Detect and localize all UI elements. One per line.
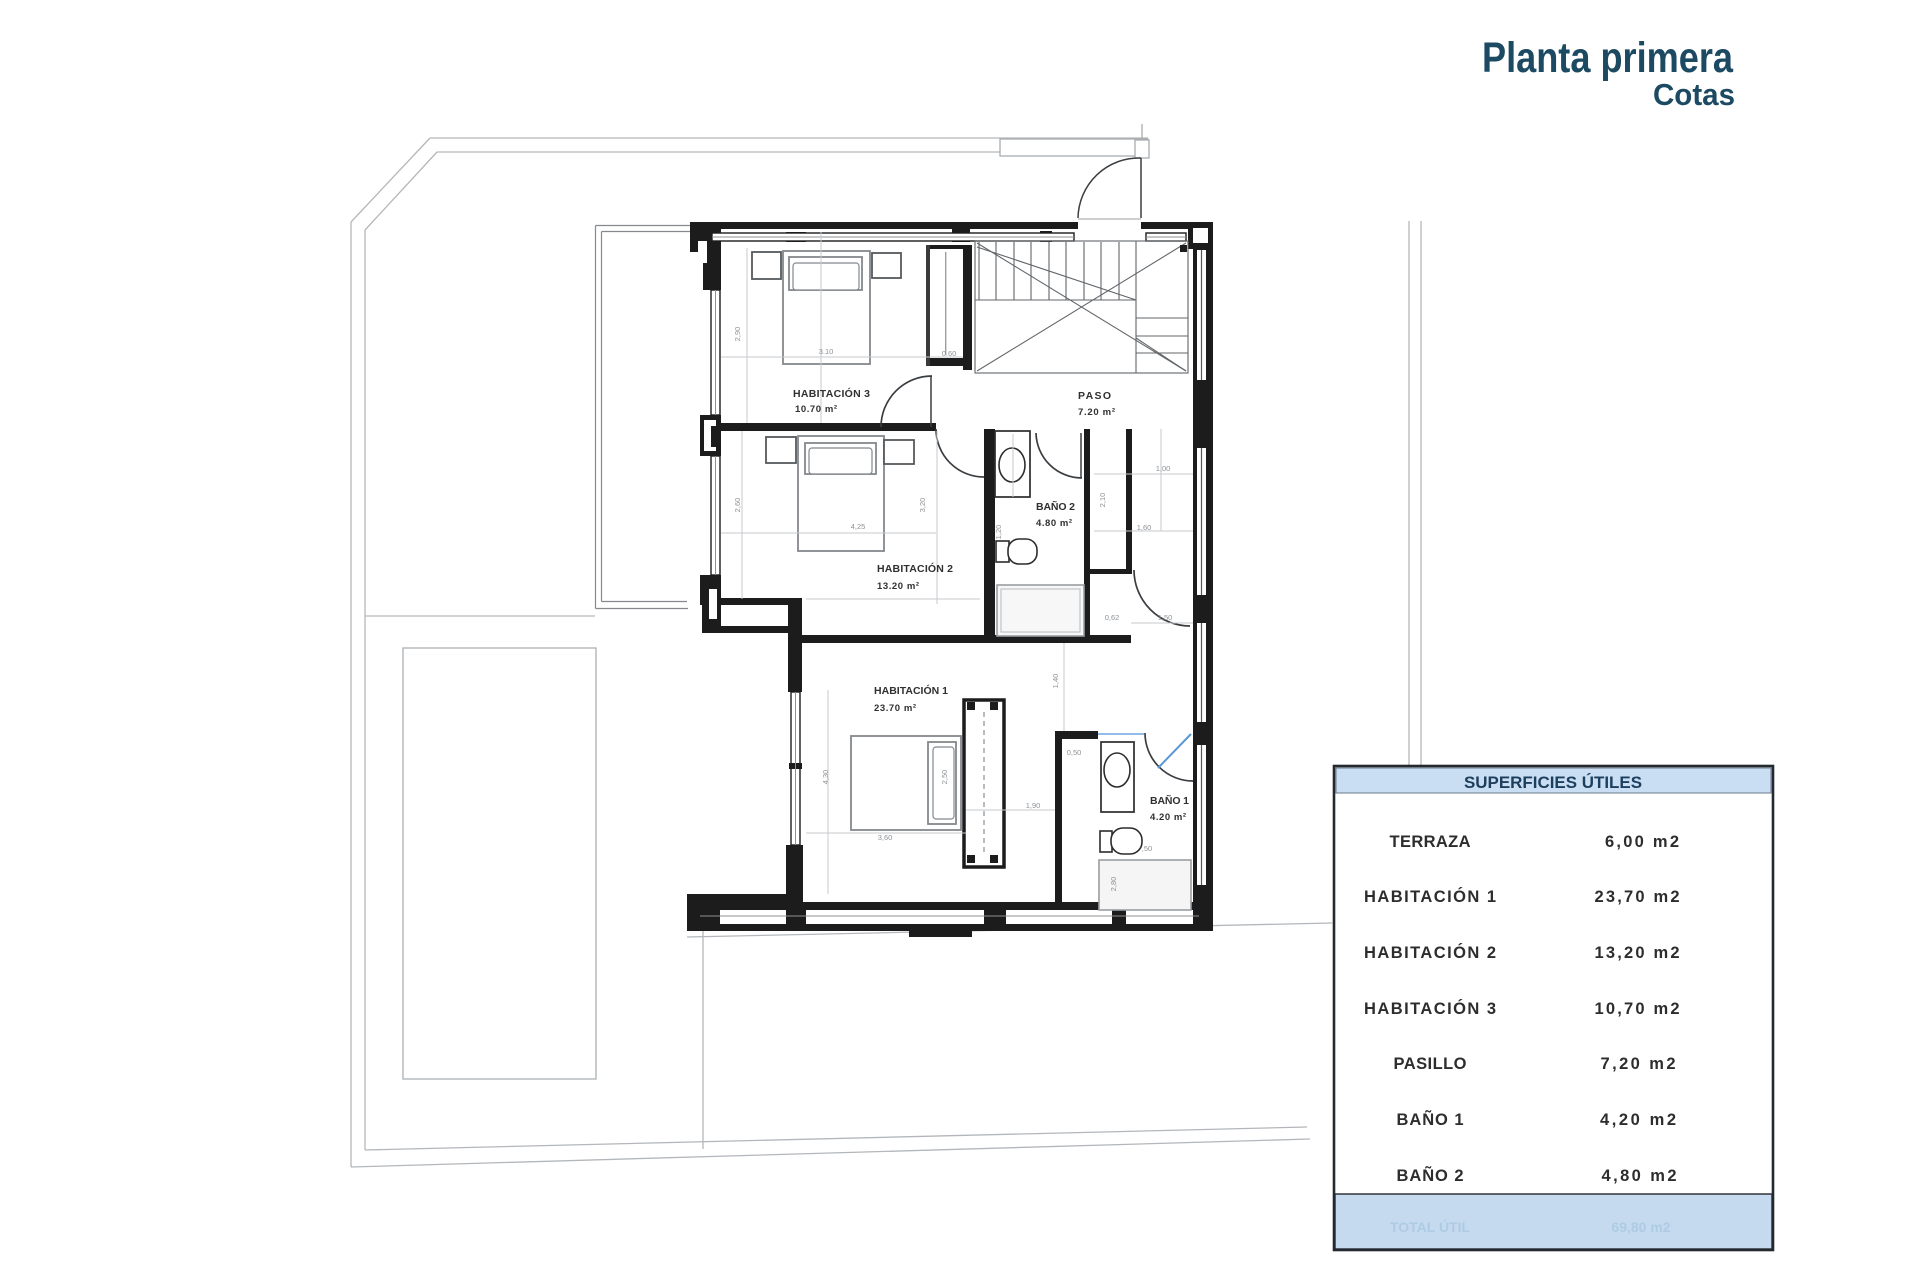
svg-text:TERRAZA: TERRAZA xyxy=(1390,833,1471,851)
svg-text:0,50: 0,50 xyxy=(1067,748,1082,757)
svg-text:2,50: 2,50 xyxy=(940,770,949,785)
svg-text:4.80 m²: 4.80 m² xyxy=(1036,518,1072,529)
svg-text:23.70 m²: 23.70 m² xyxy=(874,703,916,714)
svg-text:Planta primera: Planta primera xyxy=(1482,34,1734,82)
svg-text:BAÑO 1: BAÑO 1 xyxy=(1150,794,1189,807)
svg-text:BAÑO 1: BAÑO 1 xyxy=(1397,1109,1464,1129)
svg-text:4,25: 4,25 xyxy=(851,522,866,531)
svg-text:,50: ,50 xyxy=(1142,844,1152,853)
svg-text:HABITACIÓN 1: HABITACIÓN 1 xyxy=(874,684,948,697)
svg-text:2,10: 2,10 xyxy=(1098,493,1107,508)
svg-text:Cotas: Cotas xyxy=(1653,77,1735,112)
svg-text:1,90: 1,90 xyxy=(1026,801,1041,810)
svg-text:HABITACIÓN 3: HABITACIÓN 3 xyxy=(1364,999,1496,1018)
svg-text:2,90: 2,90 xyxy=(733,327,742,342)
svg-text:10.70 m²: 10.70 m² xyxy=(795,404,837,415)
svg-text:3.10: 3.10 xyxy=(819,347,834,356)
svg-text:23,70 m2: 23,70 m2 xyxy=(1595,888,1680,906)
svg-text:2,80: 2,80 xyxy=(1109,877,1118,892)
svg-text:HABITACIÓN 3: HABITACIÓN 3 xyxy=(793,387,870,400)
svg-text:BAÑO 2: BAÑO 2 xyxy=(1397,1165,1464,1185)
svg-text:1,50: 1,50 xyxy=(1158,613,1173,622)
svg-text:1,00: 1,00 xyxy=(1156,464,1171,473)
svg-text:PASO: PASO xyxy=(1078,390,1111,402)
svg-text:TOTAL ÚTIL: TOTAL ÚTIL xyxy=(1390,1218,1471,1235)
svg-text:7.20 m²: 7.20 m² xyxy=(1078,407,1115,418)
svg-text:2,60: 2,60 xyxy=(733,498,742,513)
svg-text:1,20: 1,20 xyxy=(994,525,1003,540)
svg-text:HABITACIÓN 2: HABITACIÓN 2 xyxy=(877,562,953,575)
svg-text:0.60: 0.60 xyxy=(942,349,957,358)
svg-text:4.20 m²: 4.20 m² xyxy=(1150,812,1186,823)
svg-text:3,60: 3,60 xyxy=(878,833,893,842)
svg-text:3,20: 3,20 xyxy=(918,498,927,513)
svg-text:PASILLO: PASILLO xyxy=(1394,1055,1467,1073)
svg-text:HABITACIÓN 1: HABITACIÓN 1 xyxy=(1364,887,1496,906)
svg-text:10,70 m2: 10,70 m2 xyxy=(1595,1000,1680,1018)
svg-text:1,60: 1,60 xyxy=(1137,523,1152,532)
svg-text:13.20 m²: 13.20 m² xyxy=(877,581,919,592)
svg-text:13,20 m2: 13,20 m2 xyxy=(1595,944,1680,962)
svg-text:HABITACIÓN 2: HABITACIÓN 2 xyxy=(1364,943,1496,962)
svg-text:69,80 m2: 69,80 m2 xyxy=(1611,1219,1670,1235)
svg-text:1,40: 1,40 xyxy=(1051,674,1060,689)
svg-text:SUPERFICIES ÚTILES: SUPERFICIES ÚTILES xyxy=(1464,773,1642,792)
svg-text:4,30: 4,30 xyxy=(821,770,830,785)
svg-text:BAÑO 2: BAÑO 2 xyxy=(1036,500,1075,513)
svg-text:0,62: 0,62 xyxy=(1105,613,1120,622)
